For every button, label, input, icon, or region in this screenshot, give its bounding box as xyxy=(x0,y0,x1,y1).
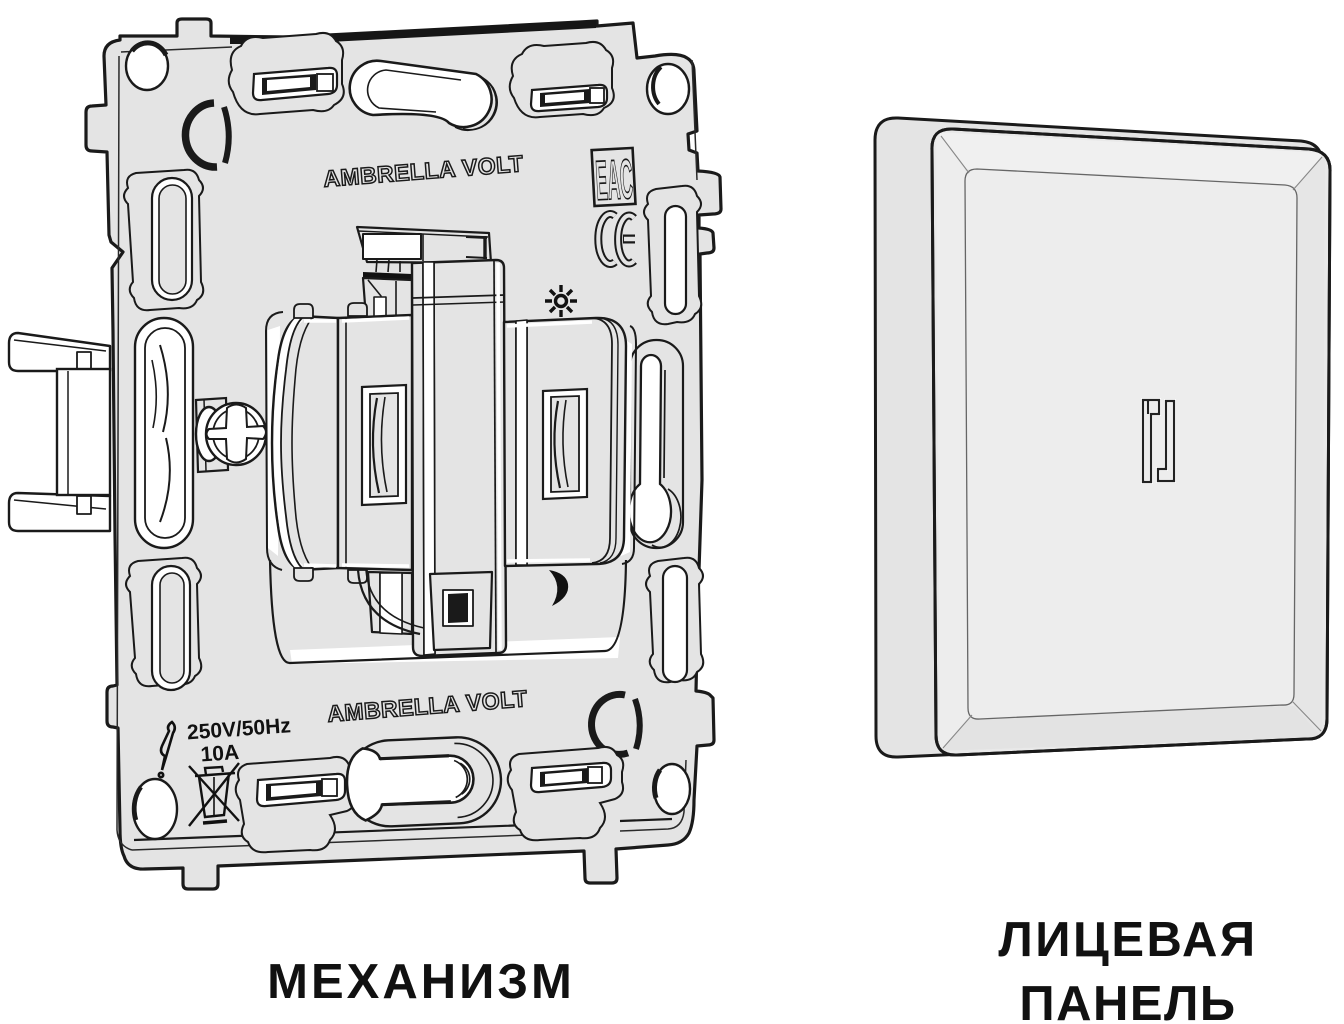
svg-text:10A: 10A xyxy=(200,741,240,767)
svg-text:ЛИЦЕВАЯ: ЛИЦЕВАЯ xyxy=(998,913,1257,967)
svg-text:EAC: EAC xyxy=(594,147,634,212)
svg-text:ПАНЕЛЬ: ПАНЕЛЬ xyxy=(1019,977,1236,1024)
svg-text:МЕХАНИЗМ: МЕХАНИЗМ xyxy=(267,955,575,1009)
